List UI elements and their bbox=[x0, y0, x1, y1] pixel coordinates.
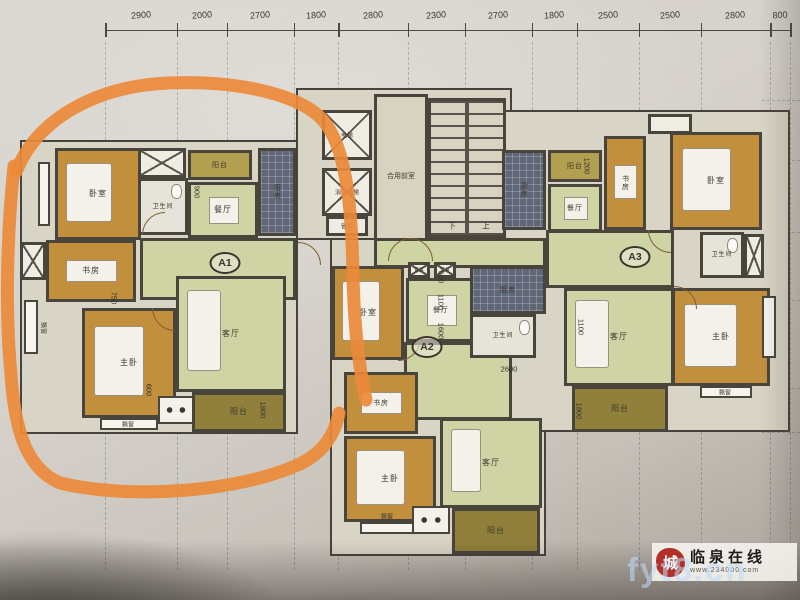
room-label: 厨房 bbox=[500, 287, 516, 294]
room-label: 客厅 bbox=[482, 459, 500, 467]
room-a1-kitchen: 厨房 bbox=[258, 148, 296, 236]
dimension-value: 800 bbox=[772, 9, 788, 20]
room-a1-study: 书房 bbox=[46, 240, 136, 302]
dimension-label: 900 bbox=[193, 186, 202, 199]
dimension-value: 2300 bbox=[426, 9, 447, 20]
dimension-label: 1200 bbox=[583, 158, 592, 175]
dimension-line bbox=[105, 30, 790, 31]
dimension-value: 2700 bbox=[250, 9, 271, 20]
dimension-tick bbox=[770, 23, 772, 37]
room-a2-bay bbox=[360, 522, 414, 534]
plan-label: 上 bbox=[482, 221, 490, 232]
room-a3-study: 书房 bbox=[604, 136, 646, 230]
dimension-tick bbox=[177, 23, 179, 37]
room-label: 书房 bbox=[622, 175, 629, 191]
unit-badge-a3: A3 bbox=[620, 246, 651, 268]
room-a2-study: 书房 bbox=[344, 372, 418, 434]
room-label: 阳台 bbox=[212, 162, 228, 169]
room-a2-bath: 卫生间 bbox=[470, 314, 536, 358]
dimension-value: 1800 bbox=[306, 9, 327, 20]
room-label: 阳台 bbox=[567, 163, 583, 170]
door-arc bbox=[298, 242, 321, 265]
room-label: 阳台 bbox=[487, 527, 505, 535]
plan-label: 飘窗 bbox=[122, 420, 134, 429]
seal-icon: 城 bbox=[656, 548, 685, 577]
room-label: 卧室 bbox=[707, 177, 725, 185]
room-label: 餐厅 bbox=[567, 205, 583, 212]
dimension-label: 1100 bbox=[437, 294, 446, 310]
room-a3-bath: 卫生间 bbox=[700, 232, 744, 278]
dimension-label: 750 bbox=[110, 292, 119, 305]
dimension-tick bbox=[701, 23, 703, 37]
room-label: 餐厅 bbox=[214, 206, 232, 214]
room-a3-balcony-bottom: 阳台 bbox=[572, 386, 668, 432]
plan-label: 飘窗 bbox=[40, 322, 49, 334]
room-label: 厨房 bbox=[521, 182, 528, 198]
dimension-tick bbox=[338, 23, 340, 37]
plan-label: 飘窗 bbox=[719, 388, 731, 397]
dimension-value: 1800 bbox=[544, 9, 565, 20]
dimension-value: 2000 bbox=[191, 9, 212, 20]
room-label: 卧室 bbox=[89, 190, 107, 198]
site-url: www.234000.com bbox=[690, 567, 759, 574]
plan-label: 管井 bbox=[414, 267, 424, 274]
room-a1-acbox bbox=[158, 396, 194, 424]
dimension-label: 600 bbox=[437, 271, 446, 284]
room-label: 厨房 bbox=[274, 184, 281, 200]
dimension-tick bbox=[408, 23, 410, 37]
room-a2-living: 客厅 bbox=[440, 418, 542, 508]
room-a2-bedroom: 卧室 bbox=[332, 266, 404, 360]
grid-line-vertical bbox=[790, 42, 791, 570]
room-label: 阳台 bbox=[611, 405, 629, 413]
room-a3-dining: 餐厅 bbox=[548, 184, 602, 232]
room-label: 主卧 bbox=[712, 333, 730, 341]
unit-badge-a1: A1 bbox=[210, 252, 241, 274]
room-a1-living: 客厅 bbox=[176, 276, 286, 392]
room-a1-balcony-top: 阳台 bbox=[188, 150, 252, 180]
floor-plan-photo: 城 临泉在线 www.234000.com fyt8.cn 2900200027… bbox=[0, 0, 800, 600]
room-a1-bay-2 bbox=[24, 300, 38, 354]
plan-label: 飘窗 bbox=[381, 512, 393, 521]
room-a3-kitchen: 厨房 bbox=[502, 150, 546, 230]
room-core-front-room bbox=[374, 94, 428, 242]
room-a3-bedroom: 卧室 bbox=[670, 132, 762, 230]
dimension-value: 2700 bbox=[488, 9, 509, 20]
room-label: 卫生间 bbox=[492, 333, 513, 339]
dimension-tick bbox=[227, 23, 229, 37]
room-a3-bay-2 bbox=[762, 296, 776, 358]
sofa-symbol bbox=[187, 290, 220, 371]
room-label: 主卧 bbox=[381, 475, 399, 483]
room-label: 阳台 bbox=[230, 408, 248, 416]
dimension-value: 2500 bbox=[659, 9, 680, 20]
room-a3-balcony-top: 阳台 bbox=[548, 150, 602, 182]
plan-label: 电梯 bbox=[341, 131, 353, 140]
dimension-tick bbox=[790, 23, 792, 37]
sofa-symbol bbox=[451, 429, 482, 491]
room-label: 客厅 bbox=[222, 330, 240, 338]
dimension-value: 2800 bbox=[363, 9, 384, 20]
room-core-stair bbox=[428, 98, 506, 238]
plan-label: 管井 bbox=[341, 222, 353, 231]
plan-label: 合用前室 bbox=[387, 171, 415, 181]
room-a2-balcony: 阳台 bbox=[452, 508, 540, 554]
room-a3-shaft-top bbox=[648, 114, 692, 134]
dimension-label: 1100 bbox=[577, 319, 586, 335]
room-a1-shaft-left bbox=[20, 242, 46, 280]
room-a2-acbox bbox=[412, 506, 450, 534]
dimension-label: 1800 bbox=[259, 402, 268, 419]
dimension-tick bbox=[577, 23, 579, 37]
room-label: 书房 bbox=[373, 400, 389, 407]
room-label: 主卧 bbox=[120, 359, 138, 367]
room-label: 卫生间 bbox=[152, 204, 173, 210]
room-a1-bay-1 bbox=[38, 162, 50, 226]
room-label: 书房 bbox=[82, 267, 100, 275]
unit-badge-a2: A2 bbox=[412, 336, 443, 358]
room-a3-shaft bbox=[744, 234, 764, 278]
room-a3-living: 客厅 bbox=[564, 288, 674, 386]
dimension-value: 2500 bbox=[597, 9, 618, 20]
dimension-value: 2900 bbox=[131, 9, 152, 20]
dimension-tick bbox=[465, 23, 467, 37]
room-a2-kitchen: 厨房 bbox=[470, 266, 546, 314]
room-label: 卫生间 bbox=[711, 252, 732, 258]
grid-line-horizontal bbox=[762, 100, 800, 101]
dimension-tick bbox=[532, 23, 534, 37]
dimension-tick bbox=[639, 23, 641, 37]
site-name: 临泉在线 bbox=[690, 550, 766, 567]
grid-line-horizontal bbox=[762, 432, 800, 433]
watermark-text: 临泉在线 www.234000.com bbox=[690, 550, 766, 574]
dimension-value: 2800 bbox=[725, 9, 746, 20]
room-label: 客厅 bbox=[610, 333, 628, 341]
dimension-tick bbox=[294, 23, 296, 37]
plan-label: 消防电梯 bbox=[335, 188, 359, 197]
dimension-tick bbox=[105, 23, 107, 37]
dimension-label: 2600 bbox=[501, 365, 518, 374]
dimension-label: 1800 bbox=[575, 403, 584, 420]
dimension-label: 1600 bbox=[437, 323, 446, 340]
watermark: 城 临泉在线 www.234000.com bbox=[652, 543, 797, 581]
room-a1-balcony-bottom: 阳台 bbox=[192, 392, 286, 432]
plan-label: 下 bbox=[448, 221, 456, 232]
room-label: 卧室 bbox=[359, 309, 377, 317]
room-a1-shaft bbox=[138, 148, 186, 178]
dimension-label: 600 bbox=[145, 384, 154, 397]
room-a1-bedroom: 卧室 bbox=[55, 148, 141, 240]
